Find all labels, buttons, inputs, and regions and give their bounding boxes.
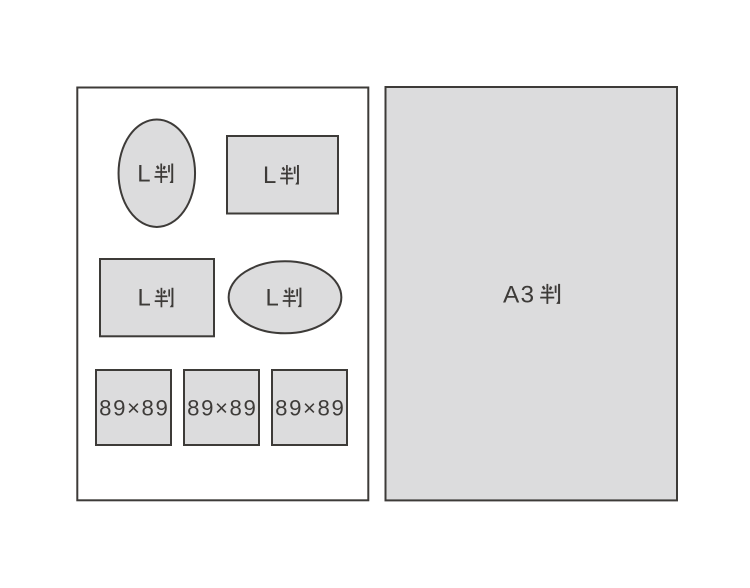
svg-text:89×89: 89×89 — [275, 395, 345, 420]
svg-text:89×89: 89×89 — [99, 395, 169, 420]
svg-text:L: L — [137, 160, 150, 187]
svg-text:89×89: 89×89 — [187, 395, 257, 420]
svg-text:L: L — [263, 162, 276, 189]
svg-text:L: L — [138, 285, 151, 312]
svg-text:A3: A3 — [503, 281, 535, 308]
svg-text:L: L — [266, 284, 279, 311]
